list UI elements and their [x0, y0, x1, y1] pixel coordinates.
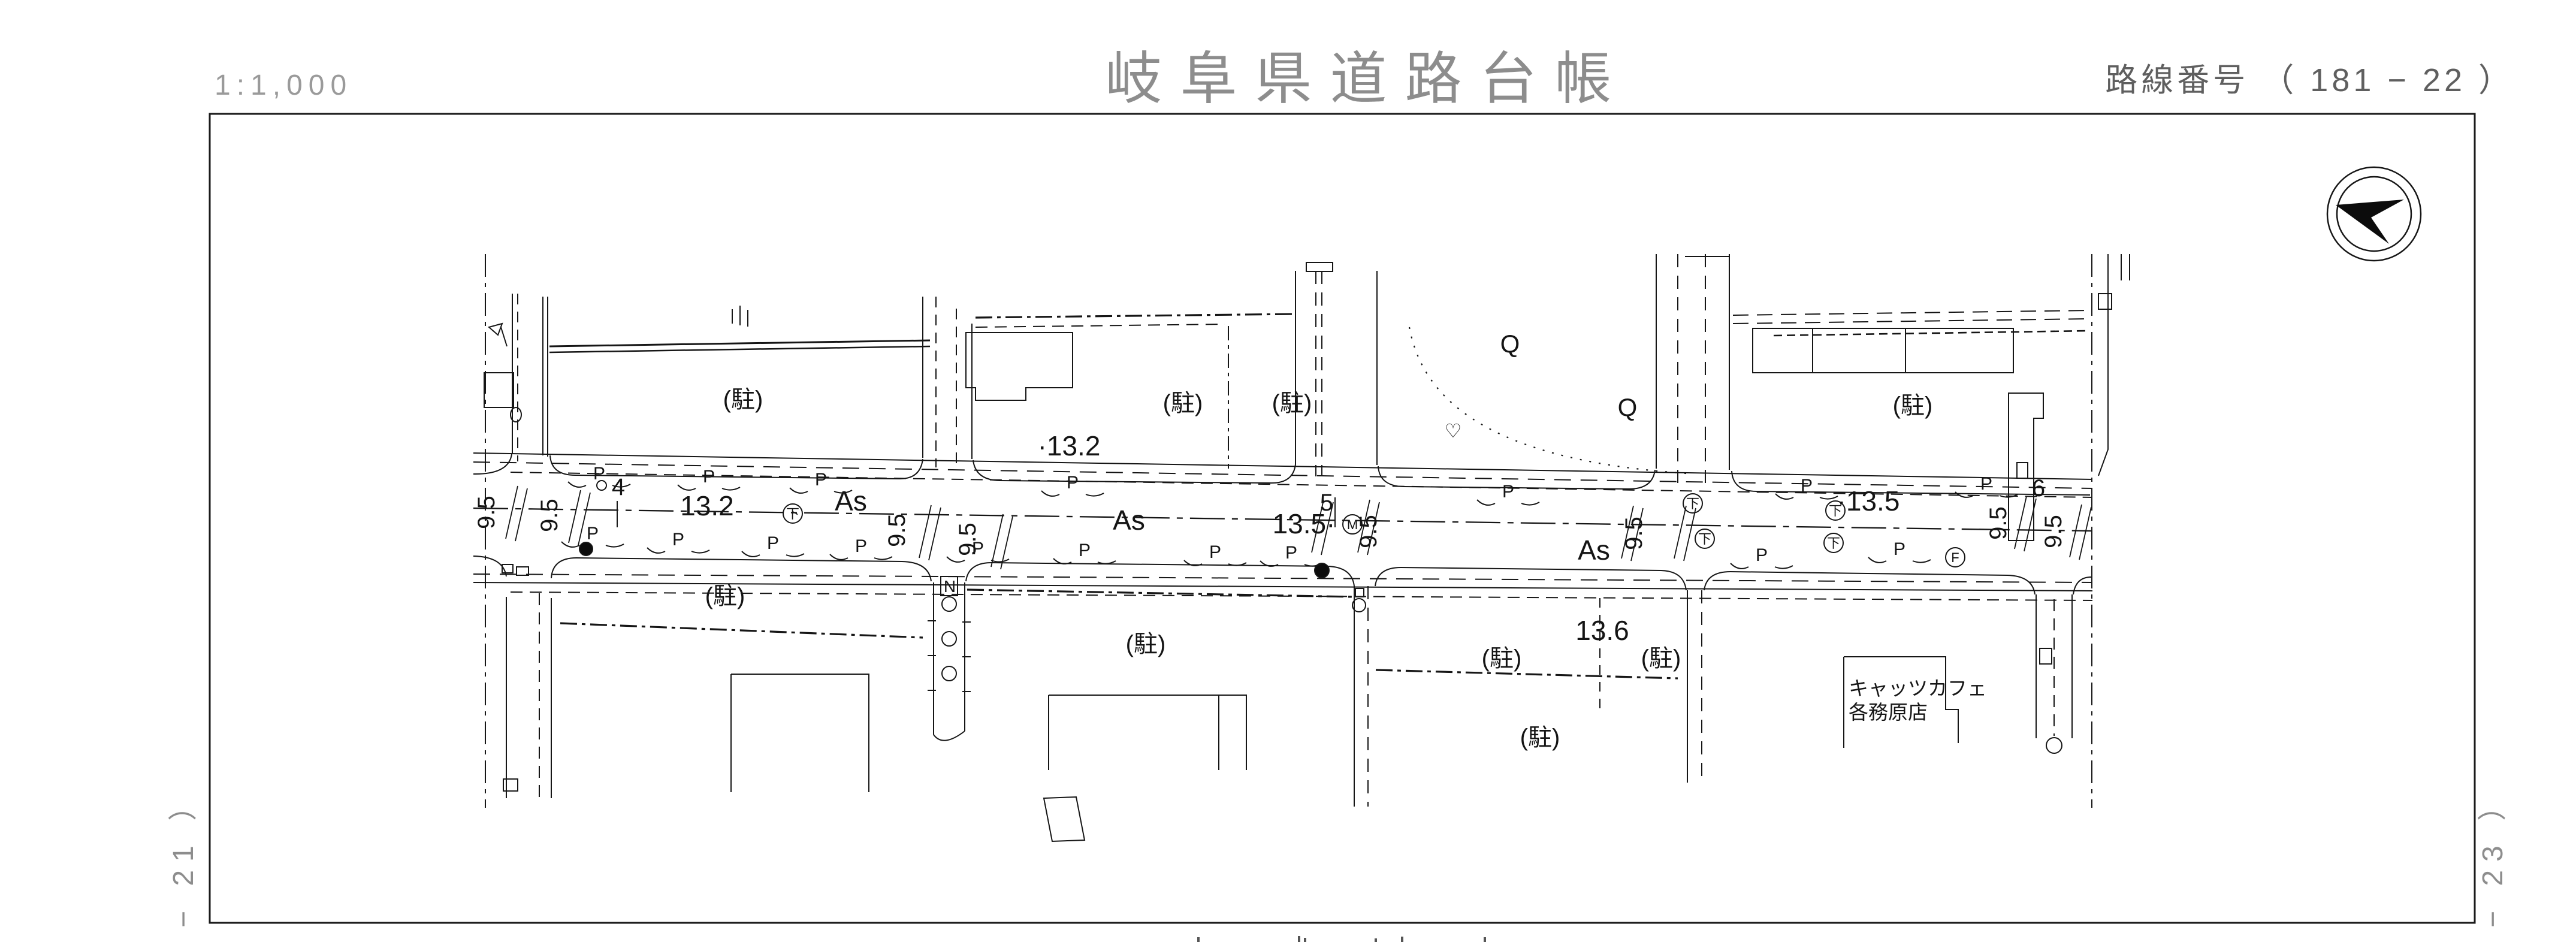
adjacent-sheet-left: − 21 ）	[168, 784, 200, 928]
map-label: 13.2	[680, 490, 734, 521]
map-label: Q	[1500, 330, 1520, 358]
north-arrow-icon	[2327, 167, 2421, 261]
landmark-line2: 各務原店	[1849, 701, 1928, 723]
pole-mark-label: P	[1502, 482, 1514, 502]
pole-mark-label: P	[593, 464, 605, 484]
width-arrow-tick-icon	[506, 486, 527, 541]
pole-mark-label: P	[1980, 474, 1992, 494]
width-arrow-tick-icon	[919, 505, 941, 560]
map-label: ·13.5	[1837, 485, 1900, 517]
map-label: 6	[2032, 475, 2045, 502]
pole-mark-label: P	[815, 470, 827, 490]
width-arrow-tick-icon	[2070, 505, 2091, 560]
map-label: 9.5	[884, 514, 910, 547]
pole-mark-label: P	[1209, 542, 1221, 562]
scale-label: 1:1,000	[215, 70, 352, 101]
road-ledger-sheet: { "header": { "scale": "1:1,000", "title…	[0, 0, 2576, 942]
map-label: N	[944, 577, 956, 596]
map-label: Q	[1618, 393, 1638, 421]
landmark-label: キャッツカフェ 各務原店	[1849, 677, 1987, 723]
pole-mark-label: P	[1894, 539, 1905, 559]
road-ledger-drawing: 1:1,000 岐阜県道路台帳 路線番号 （ 181 − 22 ） − 21 ）…	[0, 0, 2576, 942]
route-number-label: 路線番号 （ 181 − 22 ）	[2105, 62, 2514, 98]
pole-mark-label: P	[1067, 473, 1079, 493]
map-label: (駐)	[1126, 631, 1166, 657]
circled-symbol-label: M	[1347, 517, 1358, 532]
map-label: ♡	[1445, 420, 1462, 442]
adjacent-sheet-right: − 23 ）	[2477, 784, 2509, 928]
pole-mark-label: P	[672, 530, 684, 549]
page-title: 岐阜県道路台帳	[1105, 47, 1629, 111]
map-label: ·13.2	[1038, 430, 1101, 461]
width-arrow-tick-icon	[2015, 496, 2036, 551]
pole-mark-label: P	[587, 524, 599, 544]
pole-mark-label: P	[1285, 543, 1297, 563]
pole-mark-label: P	[855, 536, 867, 556]
pole-mark-label: P	[972, 539, 984, 558]
map-label: 9.5	[473, 496, 500, 529]
map-label: (駐)	[705, 583, 745, 609]
spring-symbol-icon	[732, 306, 748, 327]
map-label: (駐)	[1163, 390, 1203, 416]
circled-symbol-label: 下	[1827, 536, 1840, 551]
circled-symbol-label: 下	[786, 506, 799, 521]
pole-mark-label: P	[703, 467, 715, 487]
utility-pole-icon	[579, 542, 593, 555]
map-label: (駐)	[723, 387, 763, 413]
map-label: (駐)	[1482, 645, 1522, 672]
pole-mark-label: P	[1756, 545, 1768, 565]
pole-mark-label: P	[1801, 476, 1813, 496]
pole-mark-label: P	[767, 533, 779, 553]
circled-symbol-label: 下	[1686, 496, 1699, 511]
map-label: (駐)	[1520, 724, 1560, 751]
pole-box-icon	[1355, 588, 1364, 597]
map-label: As	[1578, 535, 1610, 566]
ledger-sheet: 1:1,000 岐阜県道路台帳 路線番号 （ 181 − 22 ） − 21 ）…	[0, 0, 2576, 942]
map-label: (駐)	[1641, 645, 1681, 672]
width-arrow-tick-icon	[1674, 506, 1696, 561]
circled-symbol-label: F	[1951, 550, 1959, 565]
circled-symbol-label: 下	[1829, 503, 1842, 518]
map-label: 13.6	[1575, 615, 1629, 646]
pole-mark-label: P	[1079, 541, 1091, 560]
map-label: 9.5	[1985, 506, 2012, 540]
map-label: As	[1113, 505, 1145, 536]
survey-marker-icon	[489, 324, 507, 346]
circled-symbol-label: 下	[1698, 532, 1711, 547]
map-label: (駐)	[1893, 393, 1933, 419]
map-label: (駐)	[1272, 390, 1312, 416]
map-label: 9.5	[536, 499, 563, 532]
map-label: As	[835, 485, 867, 517]
clipped-text-fragment	[1198, 936, 1485, 942]
landmark-line1: キャッツカフェ	[1849, 677, 1987, 699]
map-label: 9.5	[2040, 515, 2067, 548]
